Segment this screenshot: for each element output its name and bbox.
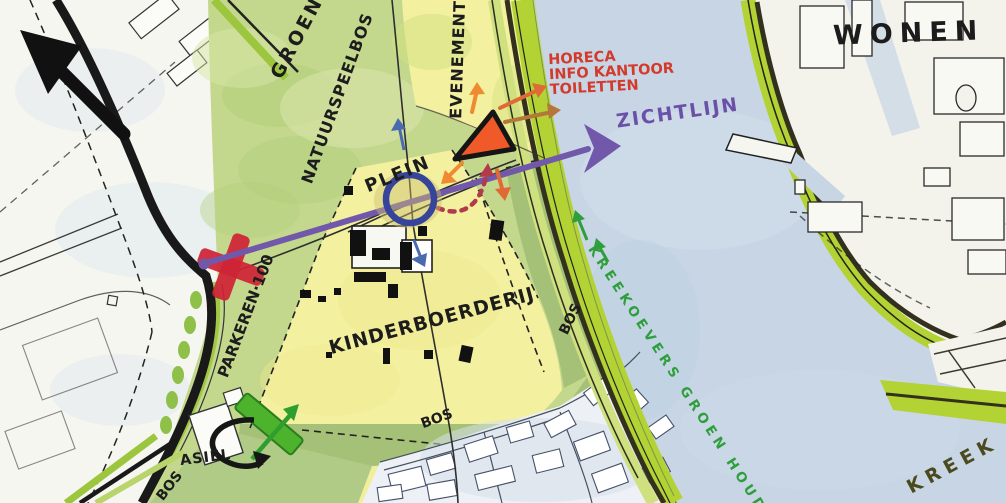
label-horeca-voorzieningen: HORECA INFO KANTOOR TOILETTEN [548,47,675,99]
sketch-map: GROEN NATUURSPEELBOS EVENEMENTEN PLEIN K… [0,0,1006,503]
label-wonen: WONEN [833,17,985,51]
map-drawing [0,0,1006,503]
